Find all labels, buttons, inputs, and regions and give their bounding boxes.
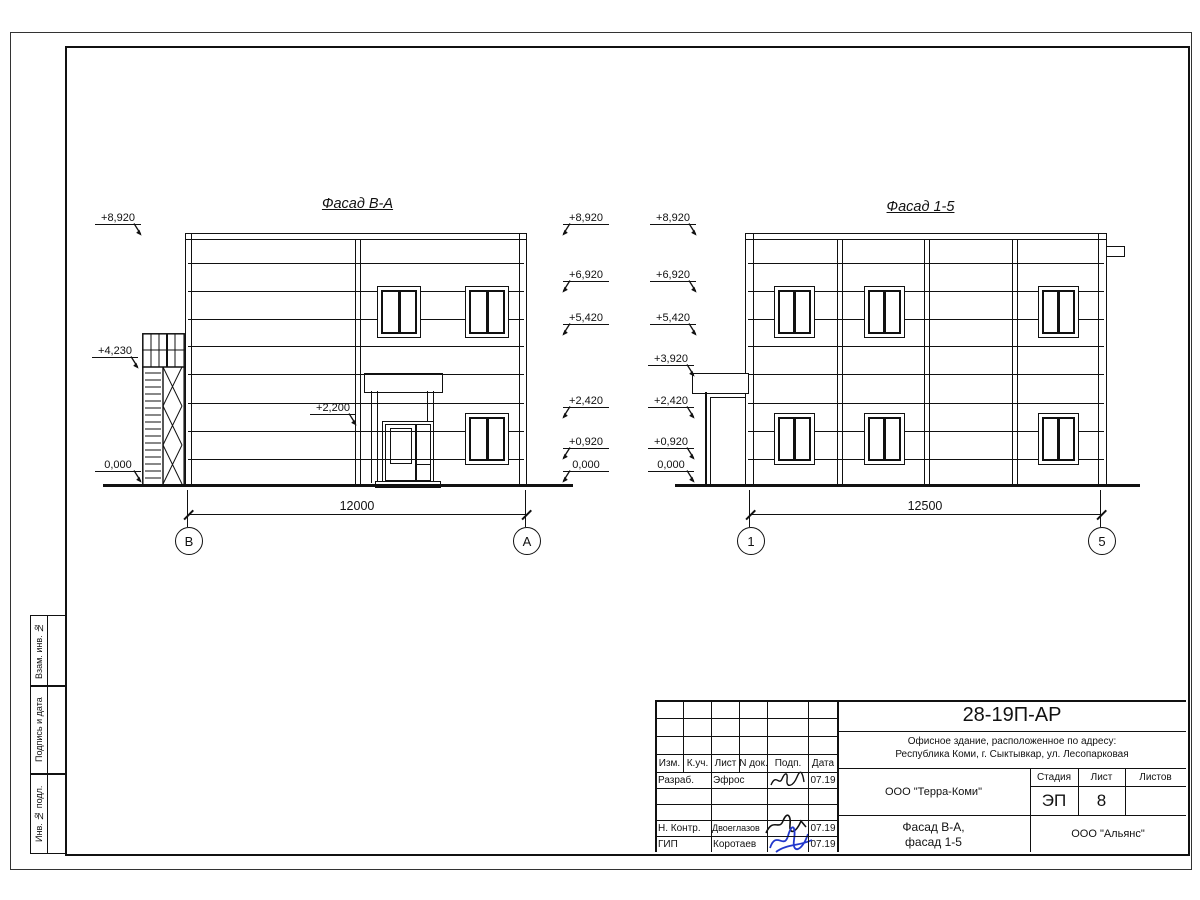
window-mullion xyxy=(486,290,489,334)
elevation-value: +0,920 xyxy=(563,436,609,448)
side-stamp-label: Взам. инв. № xyxy=(31,616,47,686)
sheet-label: Лист xyxy=(1079,769,1124,785)
title-block-line xyxy=(655,788,837,789)
roof-outlet-pipe xyxy=(1106,246,1125,257)
window xyxy=(377,286,421,338)
elevation-value: +2,420 xyxy=(563,395,609,407)
client-name: ООО "Терра-Коми" xyxy=(838,769,1029,814)
dimension-line xyxy=(188,514,526,515)
title-block-line xyxy=(837,815,1186,816)
elevation-value: +6,920 xyxy=(563,269,609,281)
dimension-line xyxy=(750,514,1101,515)
window-mullion xyxy=(1057,290,1060,334)
elevation-mark: +2,420 xyxy=(648,394,694,408)
window xyxy=(864,413,905,465)
doc-number: 28-19П-АР xyxy=(838,701,1186,730)
porch-canopy xyxy=(692,373,749,394)
elevation-arrow-icon xyxy=(132,470,144,484)
side-stamp-divider xyxy=(47,686,48,774)
cladding-line xyxy=(188,263,524,264)
grid-bubble-5: 5 xyxy=(1088,527,1116,555)
elevation-mark: +2,200 xyxy=(310,401,356,415)
grid-bubble-a: А xyxy=(513,527,541,555)
project-description-line1: Офисное здание, расположенное по адресу: xyxy=(838,735,1186,748)
project-description-line2: Республика Коми, г. Сыктывкар, ул. Лесоп… xyxy=(838,748,1186,761)
elevation-mark: +8,920 xyxy=(650,211,696,225)
door-mullion xyxy=(415,424,417,481)
window xyxy=(465,286,509,338)
facade-15-drawing xyxy=(745,233,1107,485)
elevation-mark: +4,230 xyxy=(92,344,138,358)
window-mullion xyxy=(398,290,401,334)
title-block-line xyxy=(655,820,837,821)
panel-joint xyxy=(1012,239,1018,484)
drawing-sheet: Взам. инв. № Подпись и дата Инв. № подл.… xyxy=(0,0,1200,900)
col-podp: Подп. xyxy=(768,755,808,771)
window-mullion xyxy=(883,417,886,461)
elevation-mark: +8,920 xyxy=(563,211,609,225)
side-stamp-box: Подпись и дата xyxy=(30,685,67,775)
elevation-arrow-icon xyxy=(560,406,572,420)
elevation-arrow-icon xyxy=(129,356,141,370)
cladding-line xyxy=(748,403,1104,404)
panel-joint xyxy=(924,239,930,484)
side-stamp-box: Инв. № подл. xyxy=(30,773,67,854)
col-kuch: К.уч. xyxy=(684,755,711,771)
elevation-arrow-icon xyxy=(560,323,572,337)
door-rail xyxy=(417,464,431,465)
side-stamp-label: Инв. № подл. xyxy=(31,774,47,853)
elevation-value: +8,920 xyxy=(650,212,696,224)
external-stair-tower xyxy=(142,333,185,486)
elevation-value: +4,230 xyxy=(92,345,138,357)
window-mullion xyxy=(486,417,489,461)
corner-pilaster-line xyxy=(519,234,520,484)
canopy-post xyxy=(371,391,378,483)
window xyxy=(1038,413,1079,465)
elevation-value: +5,420 xyxy=(563,312,609,324)
elevation-arrow-icon xyxy=(685,470,697,484)
elevation-arrow-icon xyxy=(132,223,144,237)
window xyxy=(774,413,815,465)
elevation-mark: +3,920 xyxy=(648,352,694,366)
elevation-arrow-icon xyxy=(685,406,697,420)
title-block-line xyxy=(837,731,1186,732)
elevation-mark: +2,420 xyxy=(563,394,609,408)
elevation-mark: +6,920 xyxy=(563,268,609,282)
ground-line xyxy=(675,484,1140,487)
elevation-arrow-icon xyxy=(347,413,359,427)
elevation-value: 0,000 xyxy=(563,459,609,471)
cladding-line xyxy=(748,374,1104,375)
elevation-value: 0,000 xyxy=(648,459,694,471)
corner-pilaster-line xyxy=(191,234,192,484)
stage-value: ЭП xyxy=(1031,787,1077,814)
window-mullion xyxy=(883,290,886,334)
row-name: Эфрос xyxy=(713,773,766,787)
title-block-line xyxy=(655,804,837,805)
title-block-line xyxy=(837,768,1186,769)
title-block-line xyxy=(808,700,809,852)
window xyxy=(1038,286,1079,338)
window-mullion xyxy=(793,417,796,461)
row-role: Разраб. xyxy=(658,773,710,787)
elevation-value: +2,420 xyxy=(648,395,694,407)
title-block-line xyxy=(655,754,837,755)
elevation-arrow-icon xyxy=(687,280,699,294)
elevation-mark: 0,000 xyxy=(563,458,609,472)
elevation-mark: +0,920 xyxy=(563,435,609,449)
corner-pilaster-line xyxy=(753,234,754,484)
elevation-mark: +0,920 xyxy=(648,435,694,449)
elevation-value: +8,920 xyxy=(563,212,609,224)
sheets-total xyxy=(1126,787,1185,814)
elevation-mark: +5,420 xyxy=(563,311,609,325)
stage-label: Стадия xyxy=(1031,769,1077,785)
cladding-line xyxy=(748,263,1104,264)
title-block-line xyxy=(1125,768,1126,815)
title-block-line xyxy=(767,700,768,852)
col-ndoc: N док. xyxy=(740,755,767,771)
elevation-arrow-icon xyxy=(560,280,572,294)
window xyxy=(774,286,815,338)
window xyxy=(864,286,905,338)
entrance-canopy xyxy=(364,373,443,393)
sheet-number: 8 xyxy=(1079,787,1124,814)
side-stamp-label: Подпись и дата xyxy=(31,686,47,774)
porch-wall-line xyxy=(710,397,711,485)
contractor-name: ООО "Альянс" xyxy=(1031,816,1185,851)
elevation-arrow-icon xyxy=(560,223,572,237)
row-name: Коротаев xyxy=(713,837,766,851)
window xyxy=(465,413,509,465)
axis-extension-line xyxy=(187,490,188,527)
elevation-value: +8,920 xyxy=(95,212,141,224)
cladding-line xyxy=(188,403,524,404)
facade-15-title: Фасад 1-5 xyxy=(863,199,978,215)
elevation-value: 0,000 xyxy=(95,459,141,471)
signature-blue xyxy=(766,822,818,856)
side-stamp-box: Взам. инв. № xyxy=(30,615,67,687)
window-mullion xyxy=(1057,417,1060,461)
title-block-line xyxy=(655,772,837,773)
axis-extension-line xyxy=(1100,490,1101,527)
elevation-value: +2,200 xyxy=(310,402,356,414)
elevation-value: +3,920 xyxy=(648,353,694,365)
row-role: ГИП xyxy=(658,837,710,851)
title-block-line xyxy=(655,736,837,737)
panel-joint xyxy=(355,239,361,484)
axis-extension-line xyxy=(525,490,526,527)
dimension-value: 12500 xyxy=(885,499,965,513)
elevation-arrow-icon xyxy=(685,364,697,378)
col-list: Лист xyxy=(712,755,739,771)
porch-soffit-line xyxy=(710,397,746,398)
project-description: Офисное здание, расположенное по адресу:… xyxy=(838,732,1186,770)
elevation-mark: 0,000 xyxy=(648,458,694,472)
facade-ba-drawing xyxy=(185,233,527,485)
title-block-line xyxy=(1078,768,1079,815)
col-izm: Изм. xyxy=(656,755,683,771)
dimension-value: 12000 xyxy=(317,499,397,513)
elevation-mark: 0,000 xyxy=(95,458,141,472)
title-block-line xyxy=(1030,768,1031,852)
title-block-line xyxy=(837,700,839,852)
elevation-value: +0,920 xyxy=(648,436,694,448)
facade-ba-title: Фасад В-А xyxy=(300,196,415,212)
col-data: Дата xyxy=(809,755,837,771)
sheet-title-line2: фасад 1-5 xyxy=(838,835,1029,850)
side-stamp-divider xyxy=(47,774,48,853)
axis-extension-line xyxy=(749,490,750,527)
porch-wall-line xyxy=(705,392,707,485)
row-role: Н. Контр. xyxy=(658,821,710,835)
elevation-mark: +8,920 xyxy=(95,211,141,225)
sheets-label: Листов xyxy=(1126,769,1185,785)
title-block-line xyxy=(1030,786,1186,787)
cladding-line xyxy=(188,346,524,347)
elevation-arrow-icon xyxy=(687,323,699,337)
elevation-arrow-icon xyxy=(560,470,572,484)
title-block-line xyxy=(655,718,837,719)
sheet-title-line1: Фасад В-А, xyxy=(838,820,1029,835)
cladding-line xyxy=(188,374,524,375)
row-name: Двоеглазов xyxy=(712,821,767,835)
side-stamp-divider xyxy=(47,616,48,686)
panel-joint xyxy=(837,239,843,484)
corner-pilaster-line xyxy=(1098,234,1099,484)
elevation-value: +6,920 xyxy=(650,269,696,281)
title-block-line xyxy=(655,700,1186,702)
title-block-line xyxy=(711,700,712,852)
elevation-mark: +5,420 xyxy=(650,311,696,325)
sheet-title: Фасад В-А, фасад 1-5 xyxy=(838,816,1029,855)
row-date: 07.19 xyxy=(809,773,837,787)
elevation-arrow-icon xyxy=(687,223,699,237)
cladding-line xyxy=(748,346,1104,347)
grid-bubble-1: 1 xyxy=(737,527,765,555)
elevation-mark: +6,920 xyxy=(650,268,696,282)
window-mullion xyxy=(793,290,796,334)
grid-bubble-v: В xyxy=(175,527,203,555)
ground-line xyxy=(103,484,573,487)
title-block-line xyxy=(655,836,837,837)
title-block-line xyxy=(655,700,657,852)
elevation-value: +5,420 xyxy=(650,312,696,324)
